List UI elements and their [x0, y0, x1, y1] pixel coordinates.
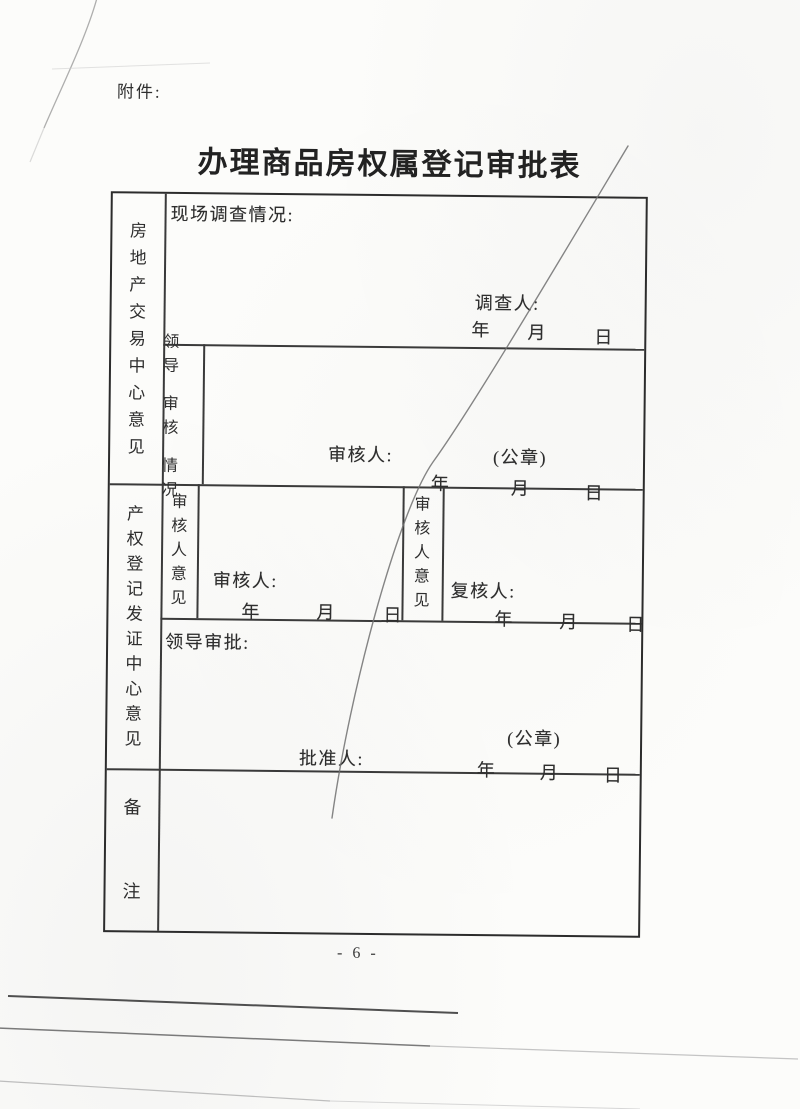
scanned-page: 附件: 办理商品房权属登记审批表 房地产交易中心意见 现场调查情况: 调查人: … — [0, 0, 800, 1109]
sublabel-leader-review-text: 领 导 审 核 情 况 — [162, 328, 204, 500]
sublabel-recheck-opinion-text: 审核人意见 — [411, 493, 434, 613]
seal-label: (公章) — [507, 724, 561, 751]
reviewer-label: 审核人: — [328, 440, 393, 467]
investigator-label: 调查人: — [475, 289, 540, 316]
month-label: 月 — [527, 319, 547, 345]
sublabel-leader-review: 领 导 审 核 情 况 — [162, 344, 203, 484]
sublabel-line: 审 核 — [162, 390, 203, 438]
attachment-label: 附件: — [117, 77, 162, 102]
cell-site-investigation: 现场调查情况: 调查人: 年 月 日 — [163, 194, 646, 349]
form-title: 办理商品房权属登记审批表 — [123, 136, 656, 186]
sublabel-review-opinion: 审核人意见 — [160, 484, 197, 618]
sublabel-recheck-opinion: 审核人意见 — [401, 486, 442, 620]
side-label-registration-center: 产权登记发证中心意见 — [107, 483, 162, 769]
approver-label: 批准人: — [299, 744, 364, 771]
sublabel-review-opinion-text: 审核人意见 — [168, 491, 191, 611]
approval-form-table: 房地产交易中心意见 现场调查情况: 调查人: 年 月 日 领 导 审 核 情 况… — [103, 191, 648, 938]
cell-leader-approval: 领导审批: (公章) 批准人: 年 月 日 — [159, 618, 642, 774]
leader-approval-label: 领导审批: — [165, 628, 250, 655]
seal-label: (公章) — [493, 443, 547, 470]
sublabel-line: 领 导 — [163, 328, 204, 376]
side-label-remarks-text: 备注 — [119, 765, 145, 933]
cell-review-opinion: 审核人: 年 月 日 — [196, 484, 402, 620]
reviewer-label: 审核人: — [213, 566, 278, 593]
rechecker-label: 复核人: — [451, 577, 516, 604]
page-number: - 6 - — [278, 944, 438, 964]
side-label-trading-center: 房地产交易中心意见 — [110, 193, 165, 484]
side-label-remarks: 备注 — [105, 768, 159, 931]
side-label-registration-center-text: 产权登记发证中心意见 — [122, 501, 148, 751]
site-investigation-label: 现场调查情况: — [170, 200, 294, 227]
cell-recheck-opinion: 复核人: 年 月 日 — [441, 487, 642, 623]
cell-remarks-empty — [157, 769, 640, 936]
day-label: 日 — [594, 323, 614, 349]
document-content: 附件: 办理商品房权属登记审批表 房地产交易中心意见 现场调查情况: 调查人: … — [0, 0, 800, 1109]
year-label: 年 — [471, 316, 491, 342]
cell-leader-review: 审核人: (公章) 年 月 日 — [202, 344, 644, 489]
side-label-trading-center-text: 房地产交易中心意见 — [125, 217, 150, 460]
